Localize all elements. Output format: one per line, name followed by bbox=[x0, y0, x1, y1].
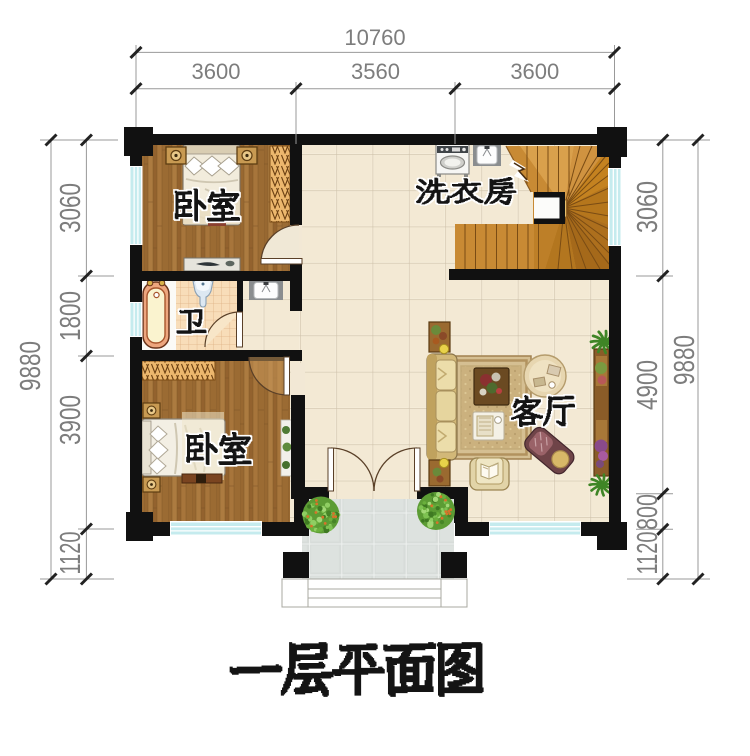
svg-text:3600: 3600 bbox=[510, 59, 559, 84]
svg-text:1120: 1120 bbox=[632, 532, 664, 575]
svg-text:1800: 1800 bbox=[55, 291, 87, 341]
svg-text:10760: 10760 bbox=[344, 25, 405, 50]
svg-text:800: 800 bbox=[632, 494, 664, 530]
svg-text:9880: 9880 bbox=[15, 341, 47, 391]
svg-text:3060: 3060 bbox=[632, 181, 664, 233]
svg-text:3600: 3600 bbox=[192, 59, 241, 84]
svg-text:9880: 9880 bbox=[669, 335, 701, 385]
svg-text:3060: 3060 bbox=[55, 183, 87, 233]
svg-text:4900: 4900 bbox=[632, 360, 664, 410]
svg-text:1120: 1120 bbox=[55, 532, 87, 575]
svg-text:3560: 3560 bbox=[351, 59, 400, 84]
svg-text:3900: 3900 bbox=[55, 395, 87, 445]
